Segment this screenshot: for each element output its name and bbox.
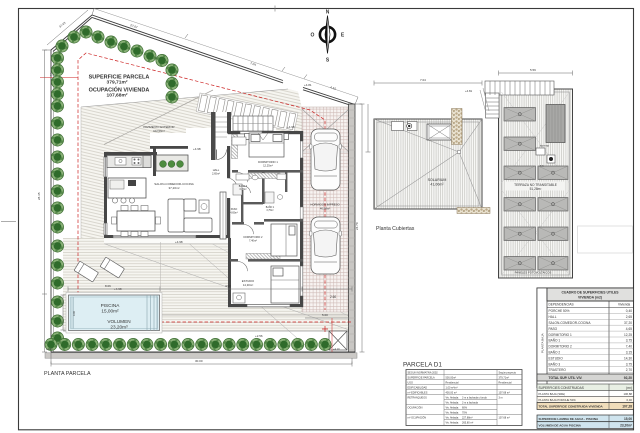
svg-text:2.60: 2.60	[330, 295, 336, 299]
svg-text:46,98m²: 46,98m²	[320, 207, 330, 211]
svg-text:EDIFICABILIDAD: EDIFICABILIDAD	[408, 386, 428, 389]
svg-text:Residencial: Residencial	[446, 381, 459, 384]
svg-text:23,20m³: 23,20m³	[620, 424, 632, 428]
svg-text:SOLARIUM: SOLARIUM	[428, 178, 447, 182]
svg-text:PASO: PASO	[549, 327, 558, 331]
svg-text:+4.98: +4.98	[193, 147, 201, 151]
svg-text:TRASTERO: TRASTERO	[549, 368, 567, 372]
svg-text:+4.10: +4.10	[46, 347, 53, 351]
svg-text:SEGUN NORMATIVA 2002: SEGUN NORMATIVA 2002	[408, 371, 439, 374]
svg-text:4,65: 4,65	[626, 327, 632, 331]
svg-text:PLANTA BAJA: PLANTA BAJA	[541, 333, 545, 353]
svg-text:379,71m²: 379,71m²	[107, 80, 128, 86]
svg-text:227,88m²: 227,88m²	[462, 416, 473, 419]
svg-text:15,00: 15,00	[624, 417, 632, 421]
svg-text:379,71m²: 379,71m²	[499, 376, 510, 379]
svg-text:107,68m²: 107,68m²	[107, 93, 128, 99]
svg-text:3,15: 3,15	[626, 351, 632, 355]
svg-text:0,40: 0,40	[627, 398, 633, 402]
svg-text:RETRANQUEOS: RETRANQUEOS	[408, 396, 428, 399]
svg-text:HALL: HALL	[549, 315, 557, 319]
svg-text:OCUPACIÓN: OCUPACIÓN	[408, 406, 423, 409]
svg-text:12,25: 12,25	[624, 333, 632, 337]
svg-text:3,75: 3,75	[626, 362, 632, 366]
svg-text:BAÑO 1: BAÑO 1	[549, 338, 561, 343]
svg-text:DEPENDENCIAS: DEPENDENCIAS	[549, 303, 574, 307]
svg-text:37,20m²: 37,20m²	[168, 186, 179, 190]
svg-text:+4.98: +4.98	[175, 240, 183, 244]
svg-text:2,70: 2,70	[626, 368, 632, 372]
svg-text:51,28m²: 51,28m²	[530, 187, 542, 191]
svg-text:15,00m²: 15,00m²	[101, 309, 119, 314]
svg-text:PLANTA PARCELA: PLANTA PARCELA	[44, 371, 91, 377]
svg-text:m² EDIFICABLES: m² EDIFICABLES	[408, 391, 428, 394]
svg-text:Planta Cubiertas: Planta Cubiertas	[376, 226, 415, 232]
svg-text:7.04: 7.04	[420, 78, 426, 82]
svg-text:107,68 m²: 107,68 m²	[499, 416, 510, 419]
svg-text:0,40: 0,40	[626, 309, 632, 313]
svg-text:PANELES FOTOVOLTAICOS: PANELES FOTOVOLTAICOS	[515, 271, 552, 275]
svg-text:7,40m²: 7,40m²	[249, 239, 257, 243]
svg-text:30.00: 30.00	[195, 359, 203, 363]
svg-text:400,00 m²: 400,00 m²	[446, 391, 457, 394]
svg-text:Residencial: Residencial	[499, 381, 512, 384]
svg-text:PARCELA D1: PARCELA D1	[403, 362, 442, 369]
svg-text:28.35: 28.35	[37, 192, 41, 200]
svg-text:SALON-COMEDOR-COCINA: SALON-COMEDOR-COCINA	[549, 321, 592, 325]
svg-text:SUPERFICIES CONSTRUIDAS: SUPERFICIES CONSTRUIDAS	[539, 386, 584, 390]
svg-text:+4.10: +4.10	[333, 347, 340, 351]
svg-text:TOTAL SUPERFICIE CONSTRUIDA VI: TOTAL SUPERFICIE CONSTRUIDA VIVIENDA	[539, 405, 604, 409]
svg-text:SUPERFICIE LAMINA DE AGUA - PI: SUPERFICIE LAMINA DE AGUA - PISCINA	[539, 417, 600, 421]
svg-text:106,88: 106,88	[623, 392, 632, 396]
svg-text:3 m a fachada y fondo: 3 m a fachada y fondo	[462, 396, 487, 399]
svg-text:(m²): (m²)	[626, 386, 632, 390]
svg-text:SUPERFICIE PARCELA: SUPERFICIE PARCELA	[89, 74, 150, 80]
svg-text:O: O	[311, 33, 315, 39]
svg-text:DORMITORIO 1: DORMITORIO 1	[258, 160, 278, 164]
svg-text:12,25m²: 12,25m²	[263, 164, 273, 168]
svg-text:265,80 m²: 265,80 m²	[462, 421, 473, 424]
svg-text:OCUPACIÓN VIVIENDA: OCUPACIÓN VIVIENDA	[89, 85, 150, 93]
svg-text:92,20: 92,20	[624, 376, 632, 380]
svg-text:2,65m²: 2,65m²	[212, 171, 220, 175]
svg-text:DORMITORIO 2: DORMITORIO 2	[244, 235, 264, 239]
svg-text:Según proyecto: Según proyecto	[499, 371, 517, 374]
svg-text:5.59: 5.59	[530, 68, 536, 72]
svg-text:Viv. Aislada:: Viv. Aislada:	[446, 406, 460, 409]
svg-text:SUPERFICIE PARCELA: SUPERFICIE PARCELA	[408, 376, 436, 379]
svg-text:PISCINA: PISCINA	[101, 303, 121, 308]
svg-text:102,56m²: 102,56m²	[153, 129, 165, 133]
svg-text:Viv. Aislada:: Viv. Aislada:	[446, 396, 460, 399]
svg-text:PORCHE 50%: PORCHE 50%	[549, 309, 570, 313]
svg-text:+4.81: +4.81	[304, 83, 312, 87]
svg-text:4.98: 4.98	[225, 284, 231, 288]
svg-text:Viv. Aislada:: Viv. Aislada:	[446, 421, 460, 424]
svg-text:3 m a fachada: 3 m a fachada	[462, 401, 478, 404]
svg-text:37,20: 37,20	[624, 321, 632, 325]
svg-text:m² OCUPACIÓN: m² OCUPACIÓN	[408, 416, 427, 419]
svg-text:3.00: 3.00	[72, 310, 76, 316]
svg-text:24.70: 24.70	[355, 222, 359, 230]
svg-text:Viv. Aislada:: Viv. Aislada:	[446, 411, 460, 414]
svg-text:PLANTA BAJA PORCHE 50%: PLANTA BAJA PORCHE 50%	[539, 398, 577, 402]
svg-text:ESTUDIO: ESTUDIO	[549, 356, 564, 360]
svg-text:VIVIENDA (m2): VIVIENDA (m2)	[578, 296, 602, 300]
svg-text:3 m: 3 m	[499, 396, 503, 399]
svg-text:CUADRO DE SUPERFICIES UTILES: CUADRO DE SUPERFICIES UTILES	[561, 291, 619, 295]
svg-text:23,20m³: 23,20m³	[110, 325, 128, 330]
svg-text:TOTAL SUP. UTIL VIV.: TOTAL SUP. UTIL VIV.	[549, 376, 583, 380]
svg-text:107,68 m²: 107,68 m²	[499, 391, 510, 394]
svg-text:500,00m²: 500,00m²	[446, 376, 457, 379]
svg-text:VOLUMEN DE AGUA PISCINA: VOLUMEN DE AGUA PISCINA	[539, 424, 582, 428]
svg-text:41,00m²: 41,00m²	[430, 183, 444, 187]
svg-text:3,75m²: 3,75m²	[266, 209, 273, 212]
svg-text:14,30m²: 14,30m²	[243, 283, 253, 287]
svg-text:BAÑO 2: BAÑO 2	[549, 350, 561, 355]
svg-text:60%: 60%	[462, 406, 468, 409]
svg-text:N: N	[326, 10, 330, 16]
svg-text:USO: USO	[408, 381, 413, 384]
svg-text:DORMITORIO 2: DORMITORIO 2	[549, 345, 573, 349]
svg-text:+4.98: +4.98	[287, 125, 295, 129]
svg-text:BAÑO 3: BAÑO 3	[549, 361, 561, 366]
svg-text:DORMITORIO 1: DORMITORIO 1	[549, 333, 573, 337]
svg-text:HALL: HALL	[213, 168, 220, 172]
svg-text:BAÑO 1: BAÑO 1	[266, 206, 275, 209]
svg-text:2,65: 2,65	[626, 315, 632, 319]
svg-text:3,15m²: 3,15m²	[239, 188, 246, 191]
svg-text:BAÑO 2: BAÑO 2	[239, 185, 248, 188]
svg-text:7,40: 7,40	[626, 345, 632, 349]
svg-text:+4.81: +4.81	[465, 89, 473, 93]
svg-text:8.06: 8.06	[105, 284, 111, 288]
svg-text:70%: 70%	[462, 411, 468, 414]
svg-text:5.00: 5.00	[322, 313, 328, 317]
svg-text:4,65m²: 4,65m²	[230, 211, 238, 214]
svg-text:VOLUMEN: VOLUMEN	[107, 319, 130, 324]
svg-text:1,00 m²/m²: 1,00 m²/m²	[446, 386, 458, 389]
svg-text:Viv. Aislada:: Viv. Aislada:	[446, 416, 460, 419]
svg-text:PLANTA BAJA (SRE): PLANTA BAJA (SRE)	[539, 392, 566, 396]
svg-text:14,30: 14,30	[624, 356, 632, 360]
svg-text:A.A.: A.A.	[540, 165, 545, 168]
svg-text:3,75: 3,75	[626, 339, 632, 343]
svg-text:107,28: 107,28	[622, 405, 632, 409]
svg-text:ANTENA: ANTENA	[540, 145, 549, 148]
svg-text:Vivienda: Vivienda	[618, 303, 630, 307]
svg-text:Viv. Aislada:: Viv. Aislada:	[446, 401, 460, 404]
svg-text:+2.56: +2.56	[255, 334, 263, 338]
